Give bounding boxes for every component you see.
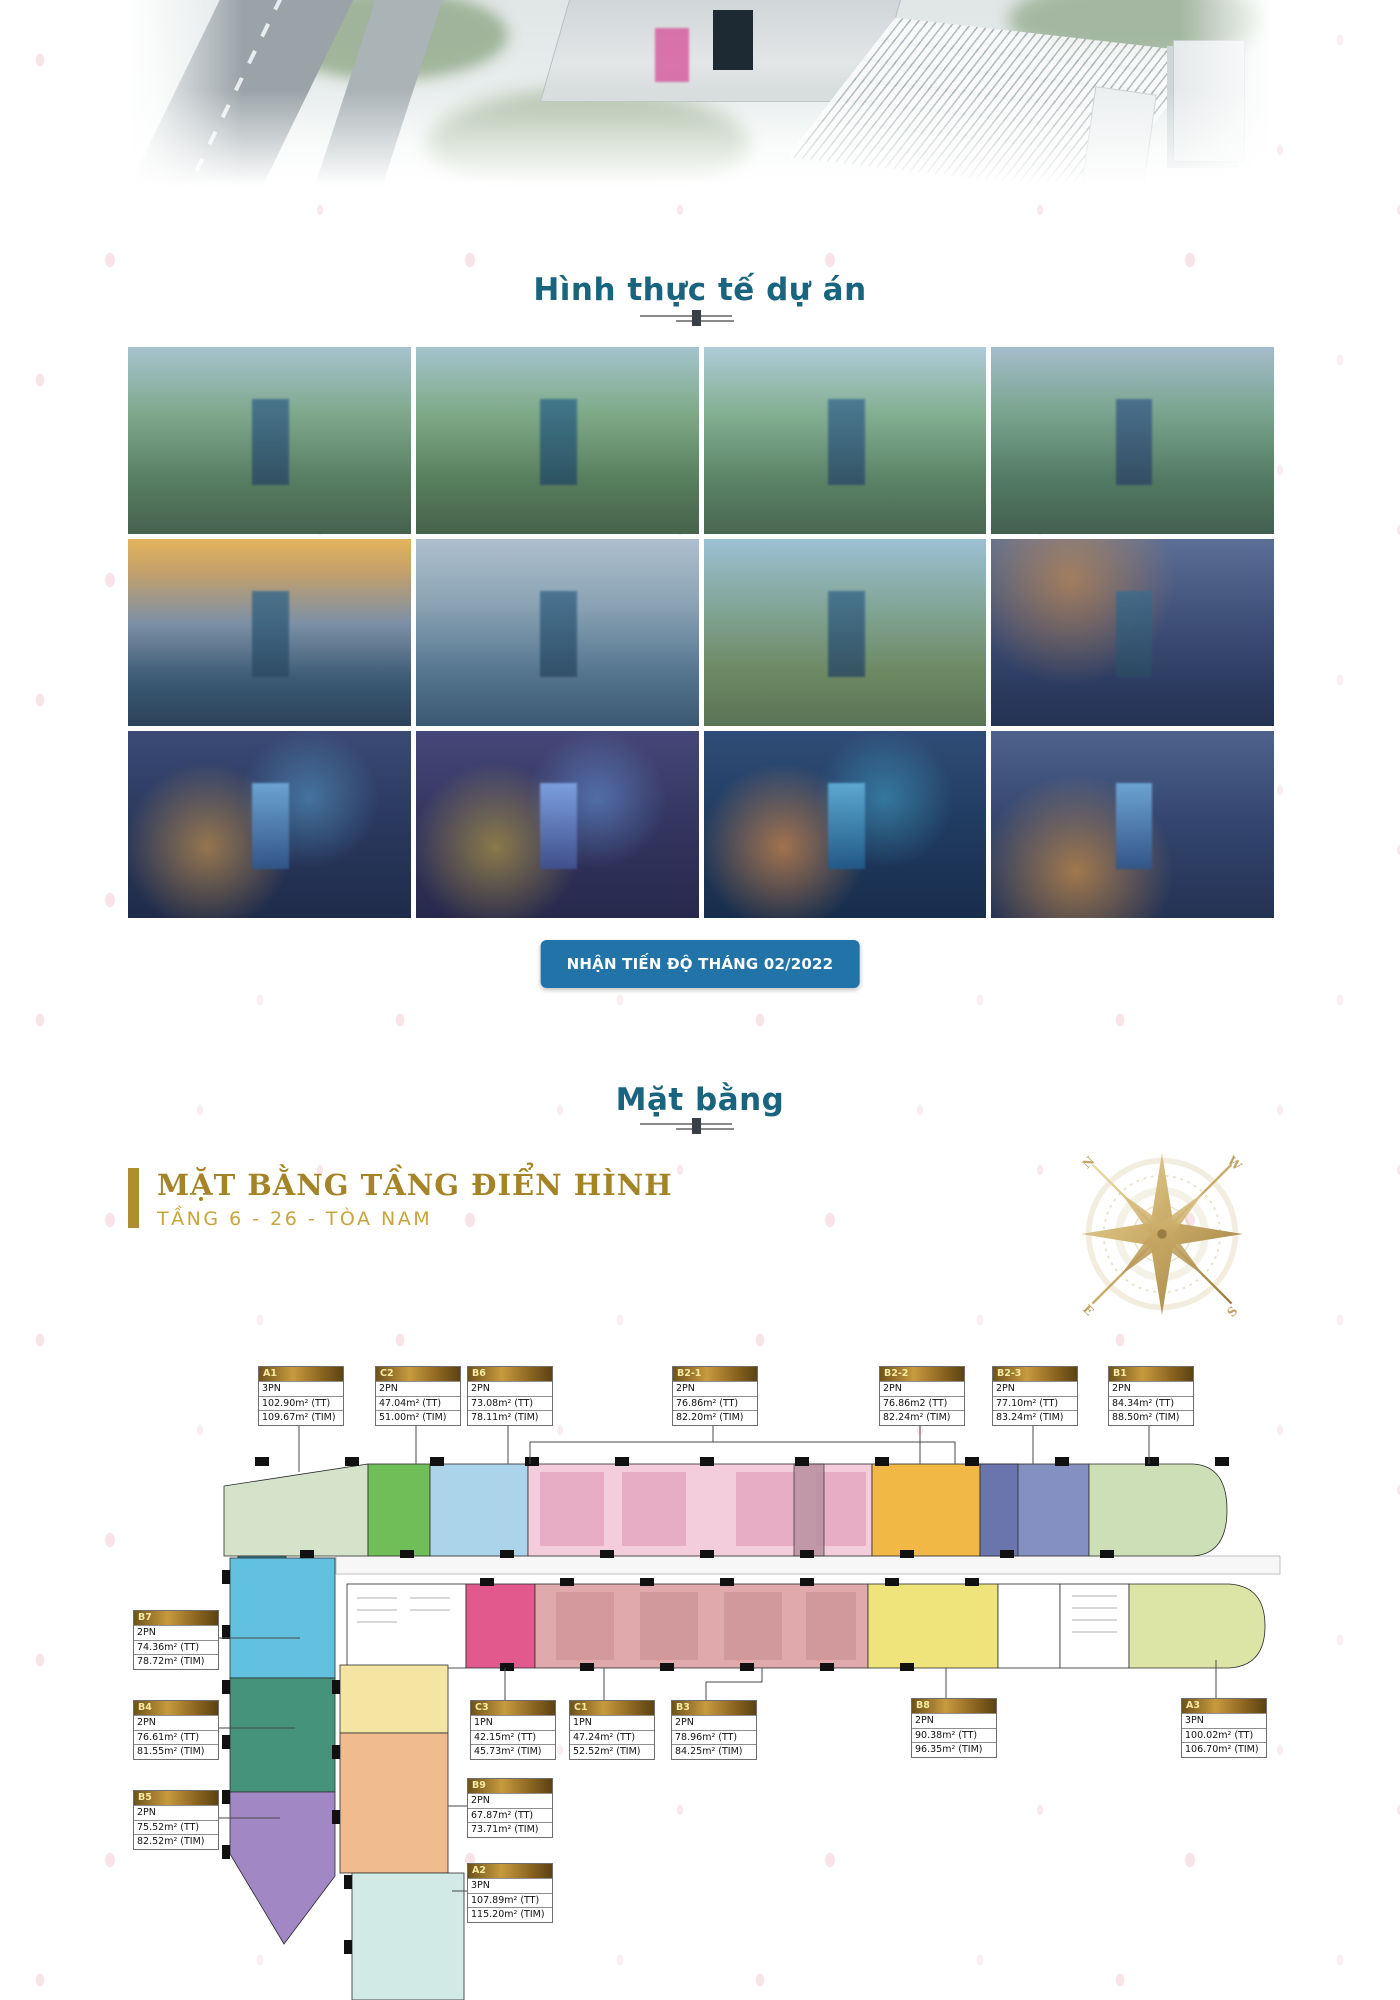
unit-id: C3: [471, 1701, 555, 1715]
project-photo-aerial-night-2[interactable]: [416, 731, 699, 918]
unit-id: B6: [468, 1367, 552, 1381]
unit-id: A3: [1182, 1699, 1266, 1713]
typical-floor-plan: A13PN102.90m² (TT)109.67m² (TIM)C22PN47.…: [0, 1360, 1400, 2000]
unit-bedrooms: 2PN: [993, 1381, 1077, 1396]
unit-area-tt: 102.90m² (TT): [259, 1396, 343, 1411]
divider-line: [676, 1128, 734, 1130]
unit-id: C1: [570, 1701, 654, 1715]
unit-id: B7: [134, 1611, 218, 1625]
unit-label-cards: A13PN102.90m² (TT)109.67m² (TIM)C22PN47.…: [0, 1360, 1400, 2000]
unit-card-B9: B92PN67.87m² (TT)73.71m² (TIM): [467, 1778, 553, 1838]
unit-card-B1: B12PN84.34m² (TT)88.50m² (TIM): [1108, 1366, 1194, 1426]
project-photo-aerial-day-1[interactable]: [128, 347, 411, 534]
unit-area-tim: 115.20m² (TIM): [468, 1907, 552, 1922]
project-photo-aerial-night-4[interactable]: [991, 731, 1274, 918]
unit-area-tim: 84.25m² (TIM): [672, 1744, 756, 1759]
unit-area-tt: 47.24m² (TT): [570, 1730, 654, 1745]
unit-card-B2-3: B2-32PN77.10m² (TT)83.24m² (TIM): [992, 1366, 1078, 1426]
unit-area-tim: 88.50m² (TIM): [1109, 1410, 1193, 1425]
section-divider: [640, 308, 760, 328]
unit-card-B6: B62PN73.08m² (TT)78.11m² (TIM): [467, 1366, 553, 1426]
project-photo-aerial-dusk-1[interactable]: [416, 539, 699, 726]
floorplan-heading: MẶT BẰNG TẦNG ĐIỂN HÌNH: [157, 1168, 673, 1202]
unit-bedrooms: 2PN: [134, 1805, 218, 1820]
unit-bedrooms: 2PN: [912, 1713, 996, 1728]
unit-area-tim: 82.20m² (TIM): [673, 1410, 757, 1425]
divider-square: [692, 310, 701, 326]
unit-card-C3: C31PN42.15m² (TT)45.73m² (TIM): [470, 1700, 556, 1760]
unit-area-tt: 84.34m² (TT): [1109, 1396, 1193, 1411]
unit-area-tim: 78.11m² (TIM): [468, 1410, 552, 1425]
project-photo-aerial-sunset-1[interactable]: [128, 539, 411, 726]
compass-rose-icon: N W E S: [1068, 1136, 1256, 1332]
unit-id: C2: [376, 1367, 460, 1381]
unit-area-tim: 81.55m² (TIM): [134, 1744, 218, 1759]
gallery-section-title: Hình thực tế dự án: [0, 272, 1400, 308]
project-photo-aerial-day-2[interactable]: [416, 347, 699, 534]
unit-id: B1: [1109, 1367, 1193, 1381]
unit-area-tim: 96.35m² (TIM): [912, 1742, 996, 1757]
project-photo-grid: [128, 347, 1274, 918]
unit-id: B4: [134, 1701, 218, 1715]
unit-id: B5: [134, 1791, 218, 1805]
unit-bedrooms: 1PN: [471, 1715, 555, 1730]
unit-bedrooms: 2PN: [880, 1381, 964, 1396]
divider-line: [640, 1123, 732, 1125]
unit-id: B9: [468, 1779, 552, 1793]
unit-area-tt: 74.36m² (TT): [134, 1640, 218, 1655]
project-photo-aerial-twilight-1[interactable]: [991, 539, 1274, 726]
unit-area-tt: 78.96m² (TT): [672, 1730, 756, 1745]
unit-card-A1: A13PN102.90m² (TT)109.67m² (TIM): [258, 1366, 344, 1426]
unit-card-B2-1: B2-12PN76.86m² (TT)82.20m² (TIM): [672, 1366, 758, 1426]
unit-card-B5: B52PN75.52m² (TT)82.52m² (TIM): [133, 1790, 219, 1850]
unit-id: B8: [912, 1699, 996, 1713]
unit-card-A2: A23PN107.89m² (TT)115.20m² (TIM): [467, 1863, 553, 1923]
unit-id: A2: [468, 1864, 552, 1878]
unit-card-B3: B32PN78.96m² (TT)84.25m² (TIM): [671, 1700, 757, 1760]
unit-bedrooms: 3PN: [468, 1878, 552, 1893]
hero-fade: [128, 90, 1272, 200]
unit-bedrooms: 2PN: [134, 1715, 218, 1730]
unit-id: B2-2: [880, 1367, 964, 1381]
unit-bedrooms: 2PN: [376, 1381, 460, 1396]
unit-bedrooms: 2PN: [134, 1625, 218, 1640]
divider-line: [640, 315, 732, 317]
unit-card-C1: C11PN47.24m² (TT)52.52m² (TIM): [569, 1700, 655, 1760]
divider-square: [692, 1118, 701, 1134]
project-photo-aerial-night-1[interactable]: [128, 731, 411, 918]
unit-card-B7: B72PN74.36m² (TT)78.72m² (TIM): [133, 1610, 219, 1670]
unit-area-tim: 109.67m² (TIM): [259, 1410, 343, 1425]
unit-bedrooms: 3PN: [259, 1381, 343, 1396]
unit-area-tt: 76.86m² (TT): [673, 1396, 757, 1411]
unit-card-A3: A33PN100.02m² (TT)106.70m² (TIM): [1181, 1698, 1267, 1758]
unit-id: B3: [672, 1701, 756, 1715]
unit-area-tt: 90.38m² (TT): [912, 1728, 996, 1743]
page: Hình thực tế dự án NHẬN TIẾN ĐỘ THÁNG 02…: [0, 0, 1400, 2000]
masterplan-section-title: Mặt bằng: [0, 1082, 1400, 1118]
unit-area-tim: 52.52m² (TIM): [570, 1744, 654, 1759]
unit-area-tim: 82.52m² (TIM): [134, 1834, 218, 1849]
unit-area-tim: 106.70m² (TIM): [1182, 1742, 1266, 1757]
floorplan-subheader: MẶT BẰNG TẦNG ĐIỂN HÌNH TẦNG 6 - 26 - TÒ…: [128, 1168, 673, 1230]
unit-area-tt: 77.10m² (TT): [993, 1396, 1077, 1411]
compass-letter: E: [1080, 1302, 1096, 1318]
unit-bedrooms: 2PN: [672, 1715, 756, 1730]
unit-bedrooms: 2PN: [1109, 1381, 1193, 1396]
unit-bedrooms: 2PN: [468, 1381, 552, 1396]
unit-area-tt: 47.04m² (TT): [376, 1396, 460, 1411]
unit-area-tim: 83.24m² (TIM): [993, 1410, 1077, 1425]
unit-card-B4: B42PN76.61m² (TT)81.55m² (TIM): [133, 1700, 219, 1760]
unit-bedrooms: 1PN: [570, 1715, 654, 1730]
unit-area-tim: 51.00m² (TIM): [376, 1410, 460, 1425]
unit-area-tim: 82.24m² (TIM): [880, 1410, 964, 1425]
project-photo-aerial-day-4[interactable]: [991, 347, 1274, 534]
unit-bedrooms: 3PN: [1182, 1713, 1266, 1728]
unit-area-tt: 42.15m² (TT): [471, 1730, 555, 1745]
project-photo-aerial-night-3[interactable]: [704, 731, 987, 918]
unit-card-C2: C22PN47.04m² (TT)51.00m² (TIM): [375, 1366, 461, 1426]
compass-letter: S: [1224, 1304, 1240, 1320]
compass-letter: N: [1080, 1154, 1098, 1172]
unit-area-tt: 75.52m² (TT): [134, 1820, 218, 1835]
unit-area-tim: 73.71m² (TIM): [468, 1822, 552, 1837]
progress-button[interactable]: NHẬN TIẾN ĐỘ THÁNG 02/2022: [541, 940, 860, 988]
unit-id: B2-1: [673, 1367, 757, 1381]
unit-card-B8: B82PN90.38m² (TT)96.35m² (TIM): [911, 1698, 997, 1758]
unit-bedrooms: 2PN: [468, 1793, 552, 1808]
unit-area-tt: 73.08m² (TT): [468, 1396, 552, 1411]
unit-card-B2-2: B2-22PN76.86m2 (TT)82.24m² (TIM): [879, 1366, 965, 1426]
unit-area-tt: 107.89m² (TT): [468, 1893, 552, 1908]
gold-accent-bar: [128, 1168, 139, 1228]
unit-id: B2-3: [993, 1367, 1077, 1381]
project-photo-aerial-day-3[interactable]: [704, 347, 987, 534]
section-divider: [640, 1116, 760, 1136]
divider-line: [676, 320, 734, 322]
floorplan-subheading: TẦNG 6 - 26 - TÒA NAM: [157, 1208, 673, 1230]
unit-area-tim: 78.72m² (TIM): [134, 1654, 218, 1669]
unit-id: A1: [259, 1367, 343, 1381]
unit-area-tim: 45.73m² (TIM): [471, 1744, 555, 1759]
unit-area-tt: 67.87m² (TT): [468, 1808, 552, 1823]
unit-area-tt: 76.86m2 (TT): [880, 1396, 964, 1411]
hero-banner: [128, 0, 1272, 200]
project-photo-aerial-day-5[interactable]: [704, 539, 987, 726]
unit-area-tt: 76.61m² (TT): [134, 1730, 218, 1745]
unit-bedrooms: 2PN: [673, 1381, 757, 1396]
unit-area-tt: 100.02m² (TT): [1182, 1728, 1266, 1743]
